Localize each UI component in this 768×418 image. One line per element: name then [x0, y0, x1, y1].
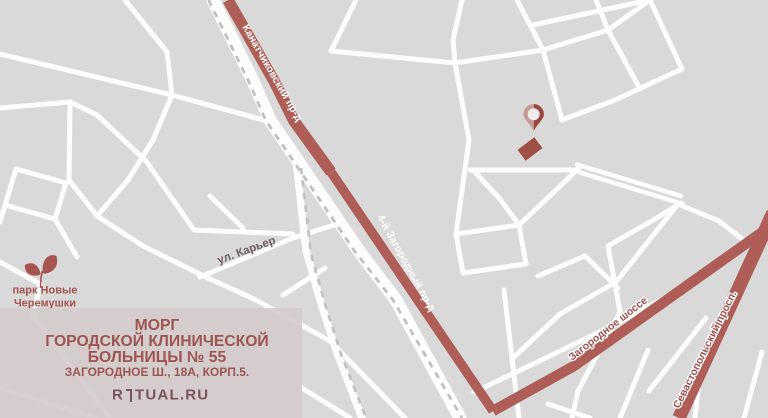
svg-text:парк Новые: парк Новые [13, 285, 78, 297]
